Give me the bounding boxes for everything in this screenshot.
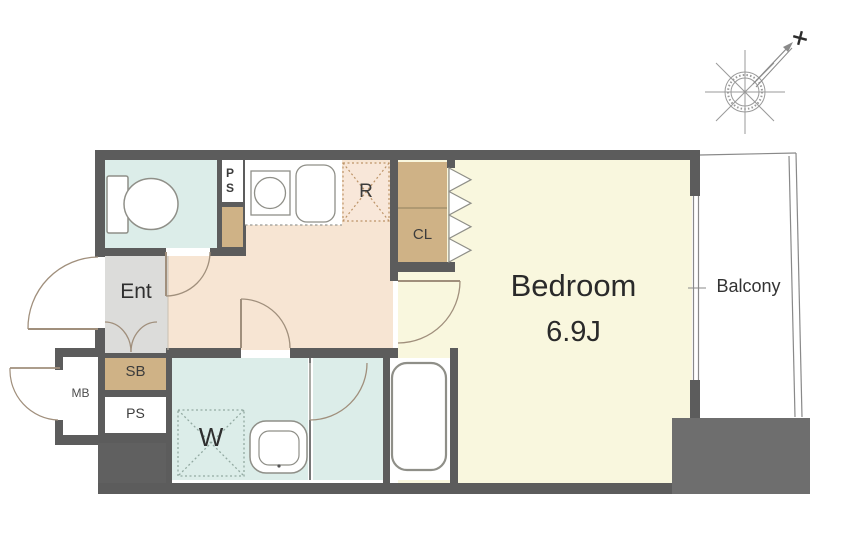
wall-storage-bottom — [217, 247, 246, 256]
toilet-icon — [107, 176, 178, 233]
balcony-label: Balcony — [700, 277, 797, 296]
wall-left-upper — [95, 150, 105, 257]
wall-kitchen-closet — [390, 150, 398, 281]
wall-washroom-top-b — [290, 348, 398, 358]
wall-closet-bottom — [390, 262, 455, 272]
wall-closet-top-stub — [447, 150, 455, 168]
wall-bath-tub — [383, 350, 390, 483]
wall-ps-lower-bottom — [98, 433, 166, 443]
floor-plan-drawing — [0, 0, 844, 550]
wall-washroom-top-a — [166, 348, 241, 358]
stove-icon — [251, 171, 290, 215]
washer-label: W — [178, 424, 244, 451]
wall-bottom — [98, 483, 690, 494]
closet-label: CL — [398, 227, 447, 243]
refrigerator-label: R — [343, 182, 389, 202]
shoe-box-label: SB — [105, 364, 166, 380]
entrance-floor — [105, 256, 168, 353]
north-marker-icon — [791, 29, 808, 46]
wall-right-stub-top — [690, 150, 700, 196]
hall-floor — [166, 256, 243, 350]
stove-burner — [255, 178, 286, 209]
storage-box-upper — [222, 207, 243, 247]
bedroom-label: Bedroom — [455, 270, 692, 303]
pipe-space-upper-label: PS — [224, 166, 236, 196]
wall-tub-bedroom — [450, 348, 458, 483]
block-bottom-right — [672, 418, 810, 494]
wall-ps-column-left — [217, 150, 222, 256]
pipe-space-lower-label: PS — [105, 406, 166, 421]
wall-meterbox-bottom — [55, 435, 105, 445]
north-arrow-shaft-2 — [756, 48, 792, 87]
wall-toilet-bottom-left — [95, 248, 166, 256]
bedroom-size-label: 6.9J — [455, 317, 692, 347]
entrance-label: Ent — [105, 281, 167, 303]
wall-ent-shoebox — [98, 353, 166, 358]
bathtub-icon — [392, 363, 446, 470]
entrance-door-arc — [28, 257, 98, 329]
floor-plan: Ent PS SB PS MB R CL W Bedroom 6.9J Balc… — [0, 0, 844, 550]
wall-washroom-left — [166, 348, 172, 483]
vanity-sink-icon — [250, 421, 307, 473]
closet-floor — [398, 162, 447, 262]
vanity-bowl — [259, 431, 299, 465]
entrance-door — [28, 257, 98, 329]
wall-shoebox-ps — [98, 390, 166, 397]
meter-box-door — [10, 368, 60, 420]
vanity-drain — [277, 464, 280, 467]
north-arrow-shaft-1 — [753, 45, 790, 84]
balcony-top-edge — [700, 153, 796, 155]
toilet-bowl — [124, 179, 178, 230]
compass-icon — [705, 29, 809, 134]
meter-box-door-arc — [10, 368, 58, 420]
meter-box-label: MB — [63, 387, 98, 400]
wall-meterbox-left-a — [55, 348, 63, 370]
wall-ps-divider — [222, 202, 243, 207]
kitchen-sink-icon — [296, 165, 335, 222]
wall-right-stub-bottom — [690, 380, 700, 418]
